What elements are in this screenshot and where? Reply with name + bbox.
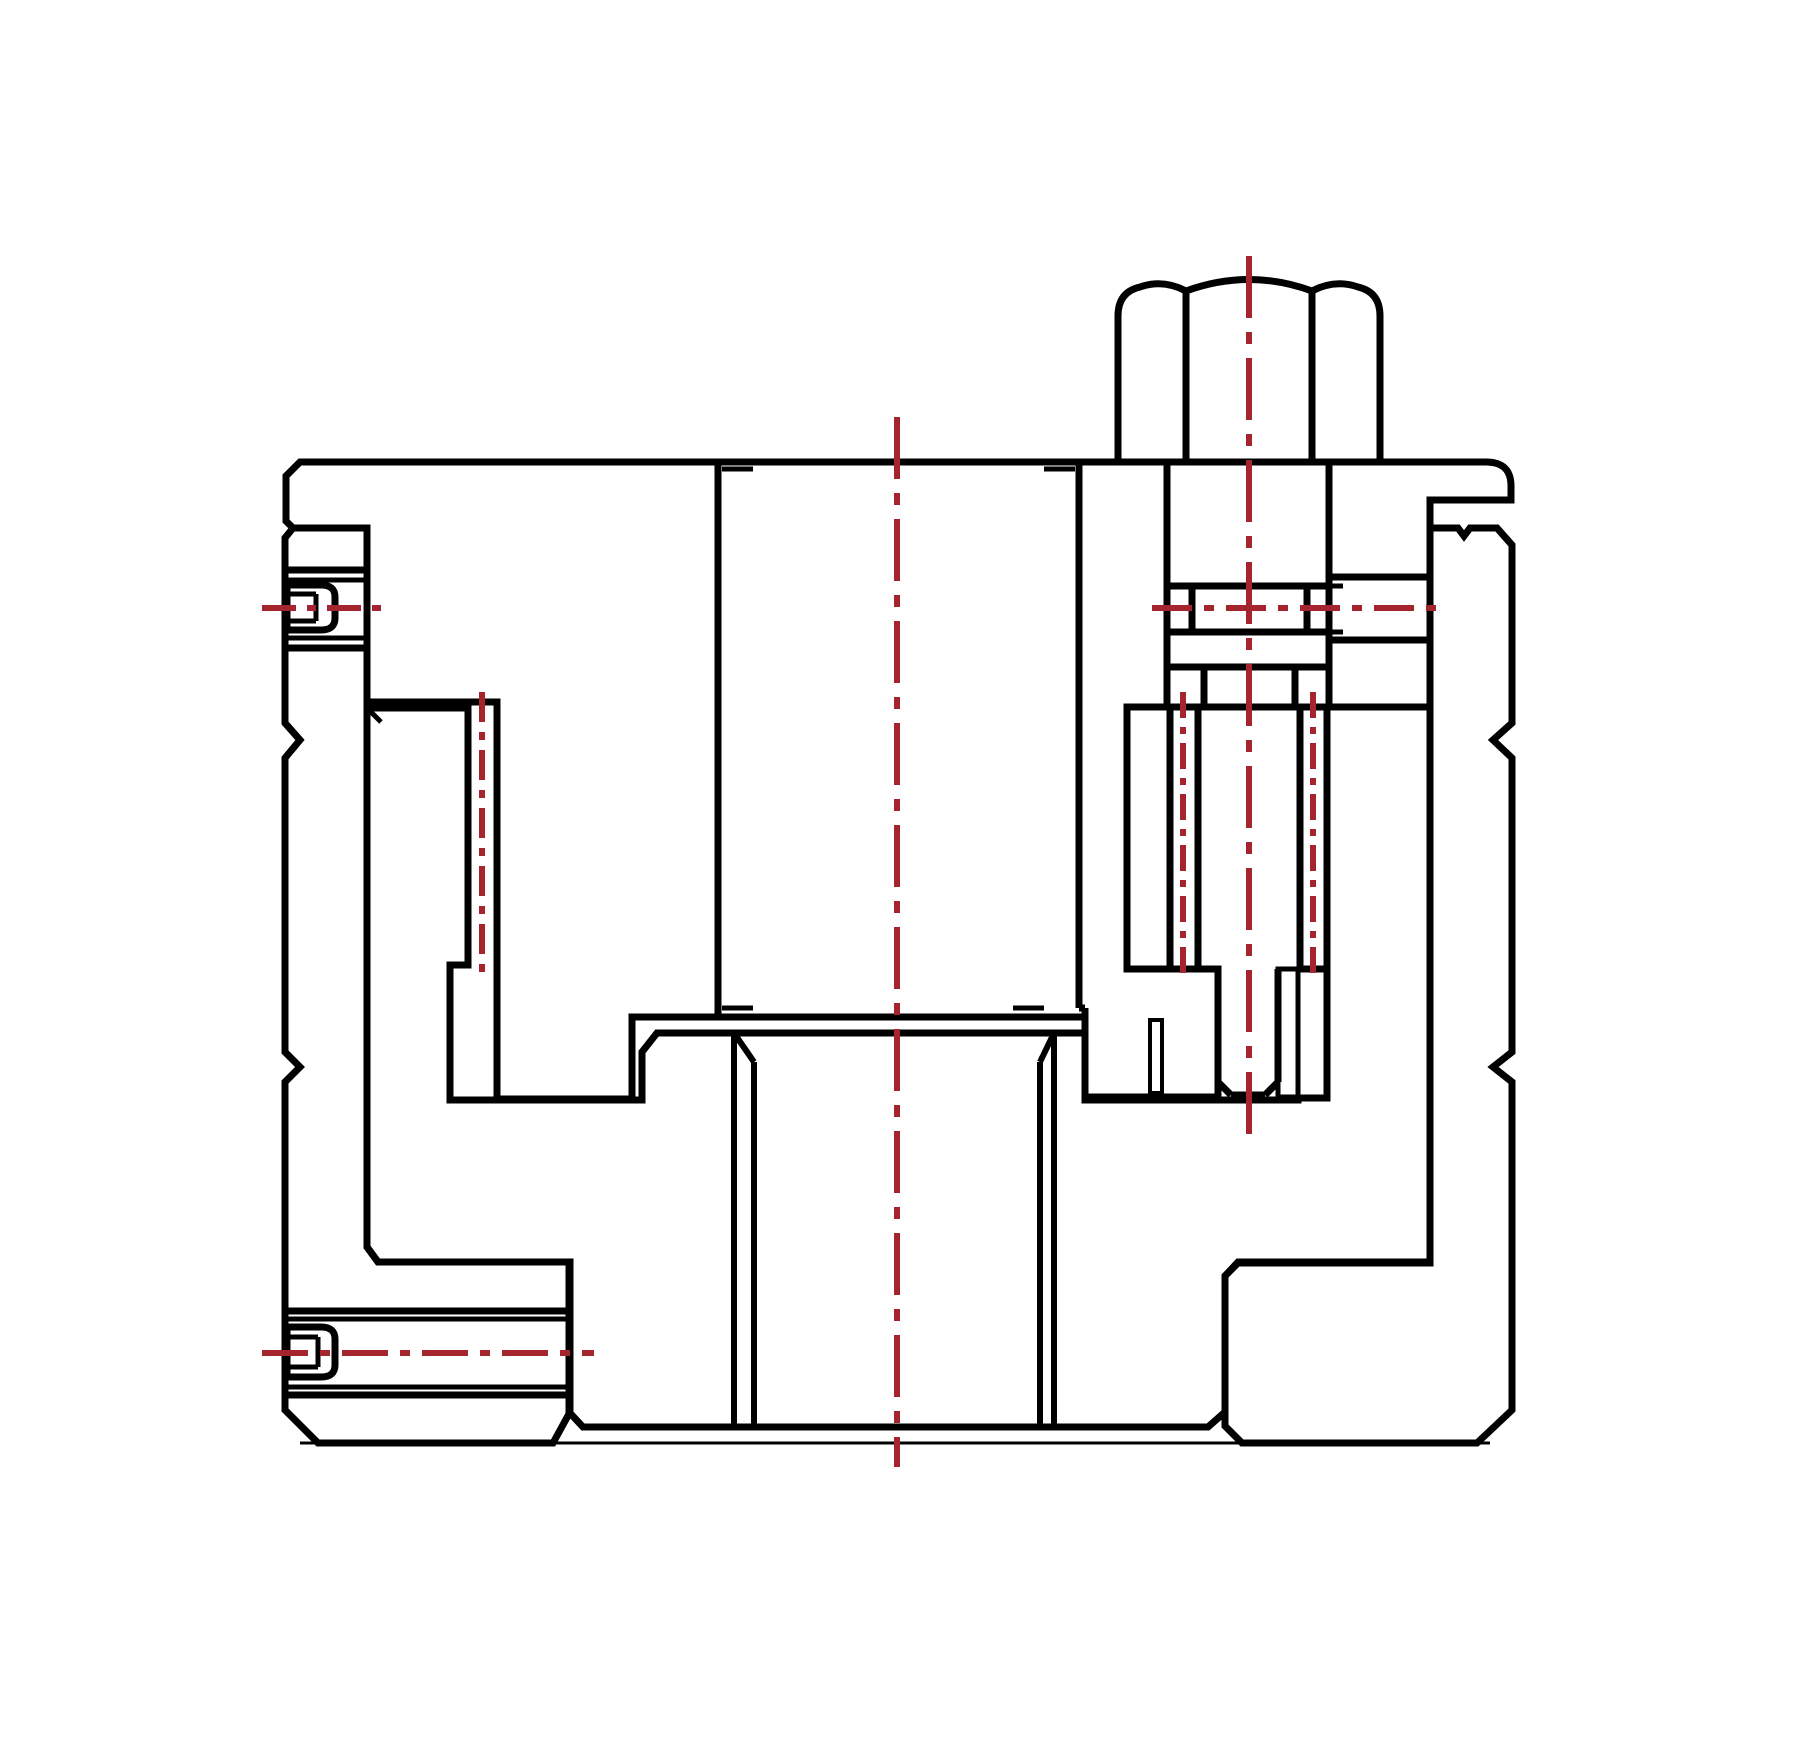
thread-relief-notch: [1150, 1020, 1162, 1093]
bolt-head-left-facet: [1118, 284, 1186, 462]
section-drawing-shapes: [262, 256, 1512, 1467]
housing-left-wall: [285, 528, 570, 1443]
bolt-head-right-facet: [1312, 284, 1380, 462]
drawing-page: [0, 0, 1816, 1752]
section-drawing-canvas: [0, 0, 1816, 1752]
